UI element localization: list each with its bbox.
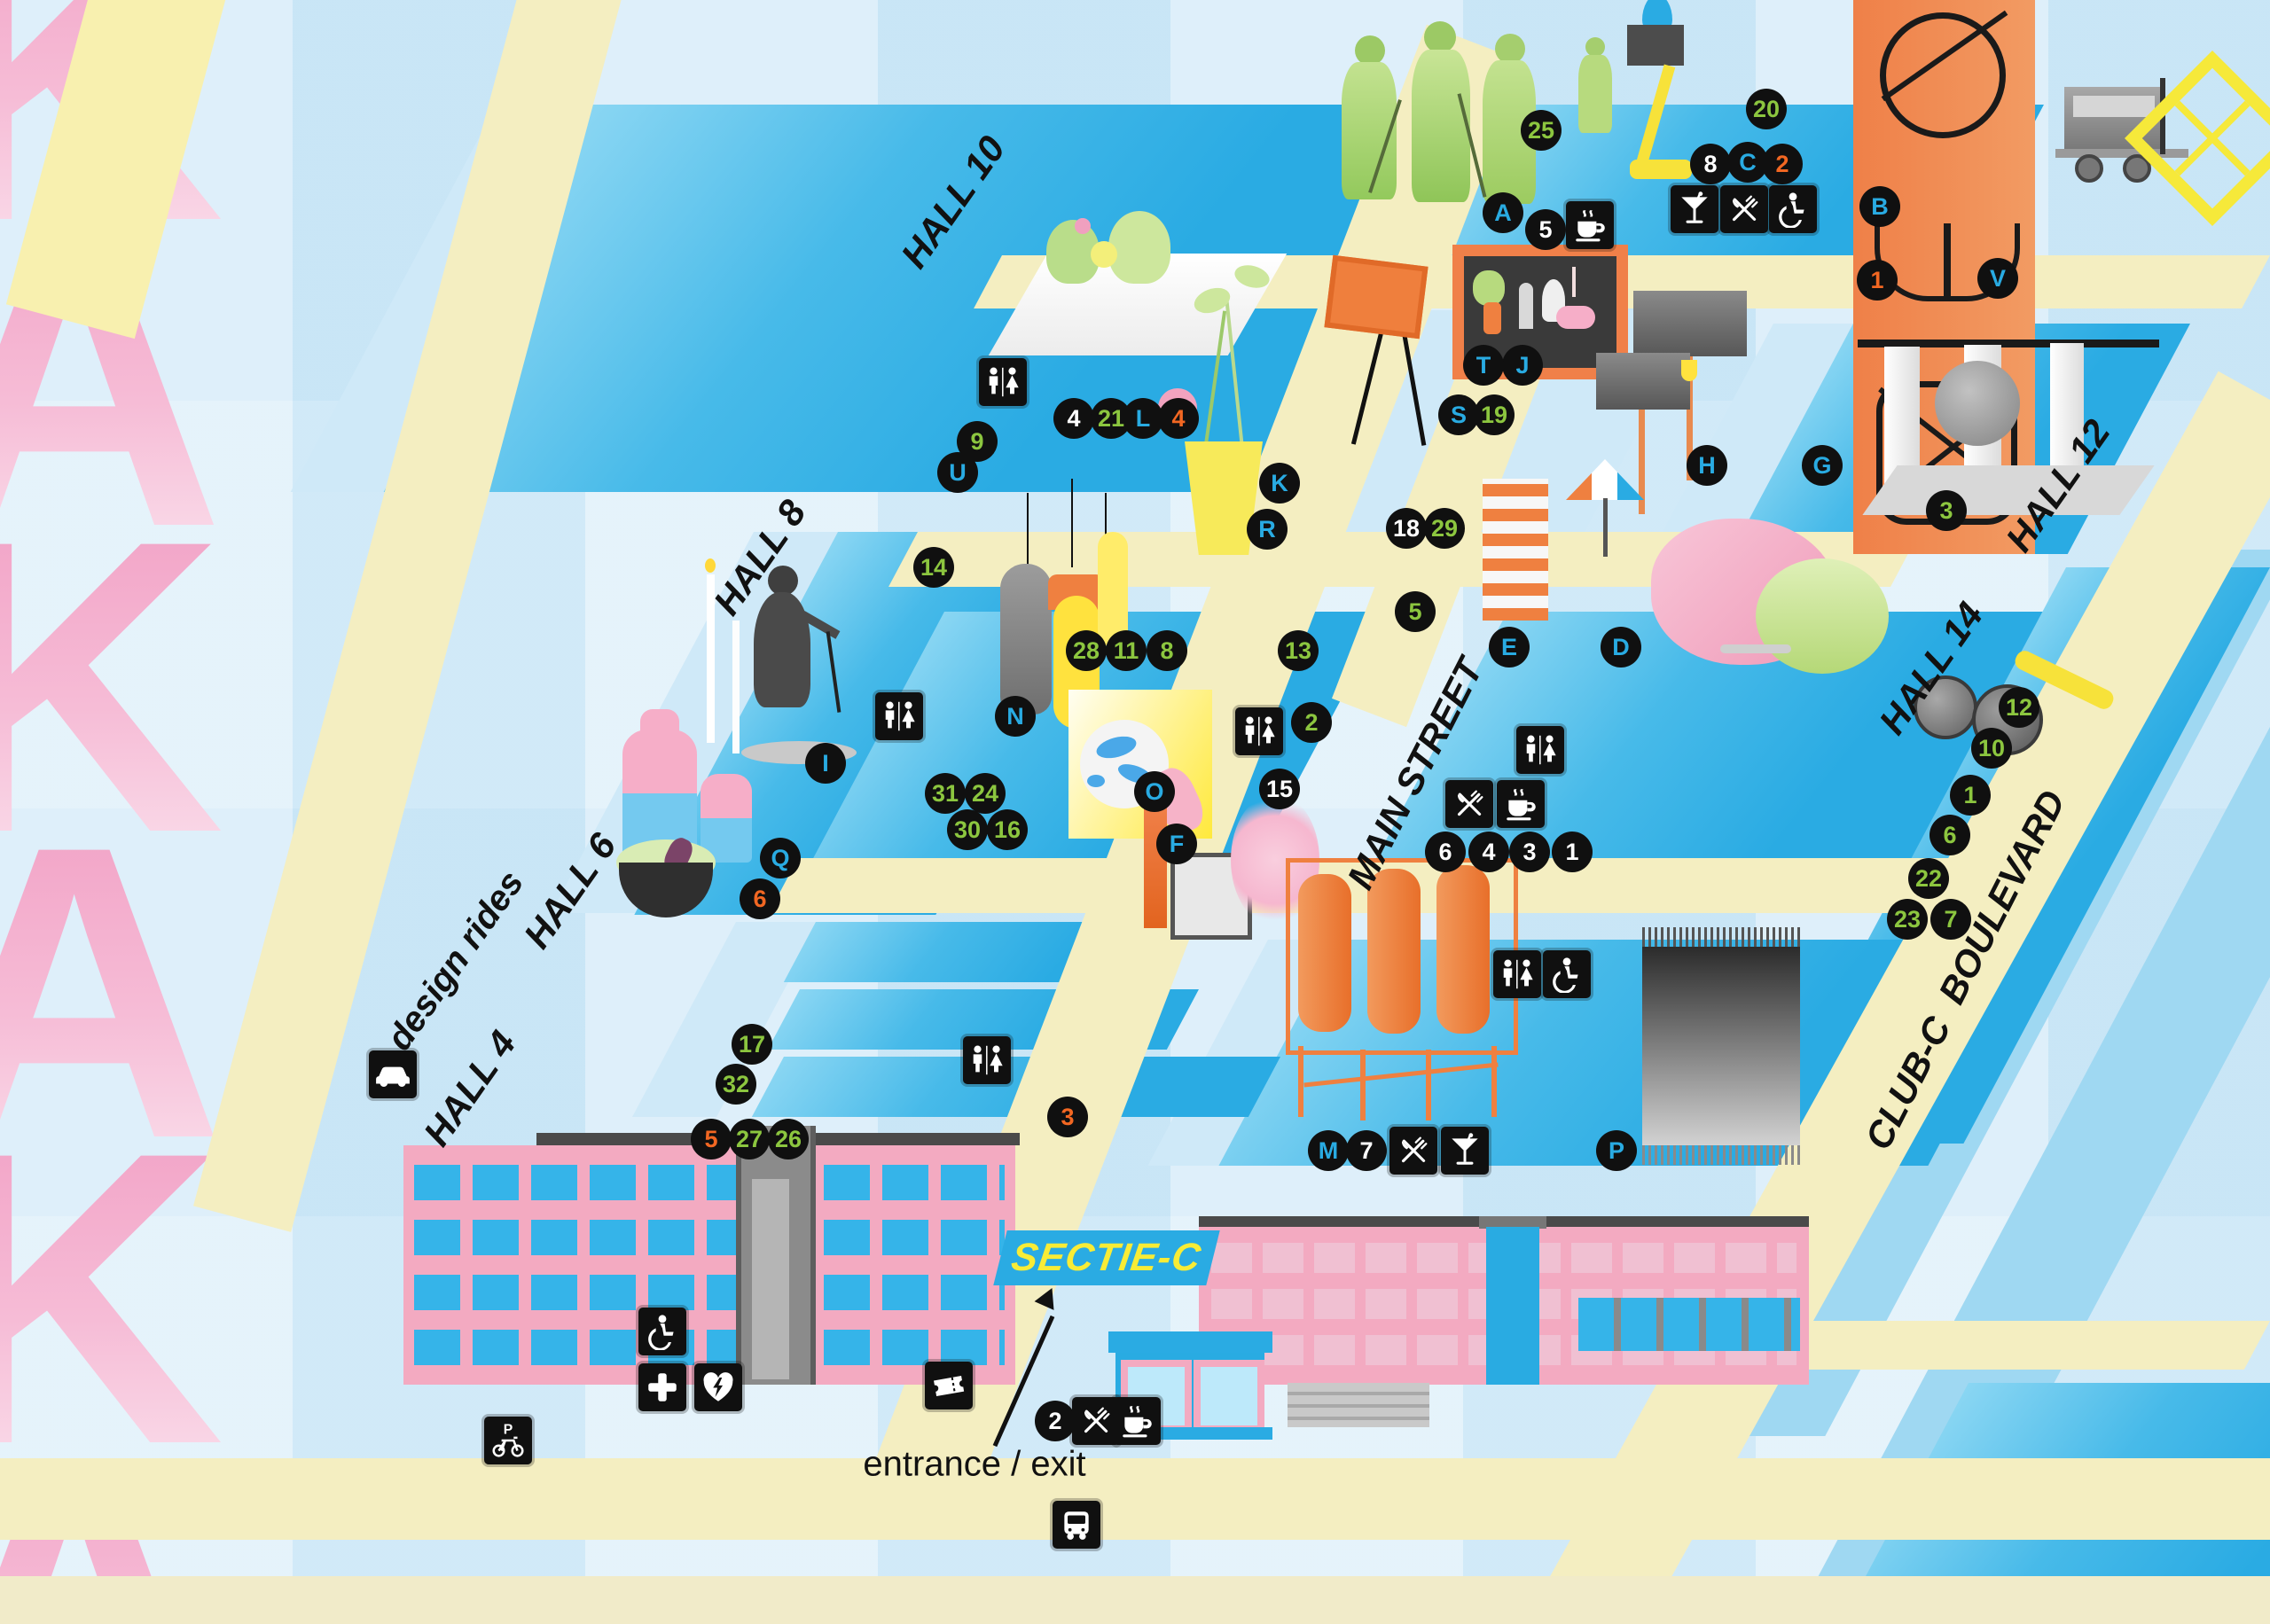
svg-text:P: P (504, 1423, 513, 1438)
marker-3: 3 (1509, 832, 1550, 872)
marker-3: 3 (1926, 490, 1967, 531)
marker-4: 4 (1158, 398, 1199, 439)
marker-24: 24 (965, 773, 1006, 814)
marker-R: R (1247, 509, 1288, 550)
road-clubc-south (1783, 1321, 2270, 1370)
bus-icon (1053, 1501, 1100, 1549)
marker-30: 30 (947, 809, 988, 850)
restroom-icon (963, 1036, 1011, 1084)
car-icon (369, 1050, 417, 1098)
marker-3: 3 (1047, 1097, 1088, 1137)
art-umbrella (1566, 459, 1646, 566)
marker-13: 13 (1278, 630, 1319, 671)
marker-8: 8 (1147, 630, 1187, 671)
wheelchair-icon (1769, 185, 1817, 233)
marker-20: 20 (1746, 89, 1787, 129)
marker-15: 15 (1259, 769, 1300, 809)
food-icon (1389, 1127, 1437, 1175)
marker-23: 23 (1887, 899, 1928, 940)
marker-14: 14 (913, 547, 954, 588)
festival-map: KAKAKA (0, 0, 2270, 1624)
marker-G: G (1802, 445, 1843, 486)
marker-31: 31 (925, 773, 966, 814)
marker-V: V (1977, 258, 2018, 299)
marker-22: 22 (1908, 858, 1949, 899)
cocktail-icon (1671, 185, 1718, 233)
art-striped-tower (1483, 479, 1548, 621)
marker-F: F (1156, 824, 1197, 864)
art-rug (1642, 927, 1800, 1165)
sectie-c-sign: SECTIE-C (993, 1230, 1219, 1285)
marker-2: 2 (1762, 144, 1803, 184)
food-icon (1445, 780, 1493, 828)
restroom-icon (1235, 707, 1283, 755)
marker-6: 6 (1929, 815, 1970, 855)
marker-4: 4 (1053, 398, 1094, 439)
marker-9: 9 (957, 421, 998, 462)
ticket-icon (925, 1362, 973, 1409)
marker-6: 6 (1425, 832, 1466, 872)
marker-17: 17 (732, 1024, 772, 1065)
marker-29: 29 (1424, 508, 1465, 549)
marker-18: 18 (1386, 508, 1427, 549)
marker-7: 7 (1930, 899, 1971, 940)
art-scaffold (1286, 851, 1516, 1121)
sectie-c-label: SECTIE-C (1009, 1236, 1205, 1280)
building-left (403, 1126, 1024, 1385)
marker-P: P (1596, 1130, 1637, 1171)
cocktail-icon (1441, 1127, 1489, 1175)
marker-B: B (1859, 186, 1900, 227)
marker-A: A (1483, 192, 1523, 233)
marker-T: T (1463, 345, 1504, 386)
marker-1: 1 (1552, 832, 1593, 872)
marker-5: 5 (691, 1119, 732, 1159)
marker-D: D (1601, 627, 1641, 668)
first-aid-icon (638, 1363, 686, 1411)
wheelchair-icon (638, 1308, 686, 1355)
coffee-icon (1497, 780, 1545, 828)
entrance-exit-label: entrance / exit (863, 1445, 1085, 1485)
marker-19: 19 (1474, 394, 1515, 435)
marker-1: 1 (1950, 775, 1991, 816)
building-sectie-c (1199, 1216, 1811, 1386)
marker-16: 16 (987, 809, 1028, 850)
restroom-icon (875, 692, 923, 740)
art-green-figures (1330, 18, 1632, 222)
marker-26: 26 (768, 1119, 809, 1159)
marker-2: 2 (1291, 702, 1332, 743)
restroom-icon (1516, 726, 1564, 774)
marker-10: 10 (1971, 728, 2012, 769)
marker-7: 7 (1346, 1130, 1387, 1171)
art-hall12-installation (1853, 332, 2172, 527)
marker-27: 27 (729, 1119, 770, 1159)
marker-Q: Q (760, 838, 801, 878)
marker-H: H (1687, 445, 1727, 486)
marker-6: 6 (740, 878, 780, 919)
marker-5: 5 (1525, 209, 1566, 250)
marker-5: 5 (1395, 591, 1436, 632)
restroom-icon (1493, 950, 1541, 998)
marker-28: 28 (1066, 630, 1107, 671)
road-bottom-2 (0, 1576, 2270, 1624)
marker-E: E (1489, 627, 1530, 668)
marker-K: K (1259, 463, 1300, 504)
marker-M: M (1308, 1130, 1349, 1171)
art-canopy (1640, 510, 1906, 687)
restroom-icon (979, 358, 1027, 406)
marker-11: 11 (1106, 630, 1147, 671)
road-bottom (0, 1458, 2270, 1540)
marker-4: 4 (1468, 832, 1509, 872)
marker-32: 32 (716, 1064, 756, 1105)
coffee-icon (1566, 201, 1614, 249)
food-icon (1720, 185, 1768, 233)
marker-O: O (1134, 771, 1175, 812)
marker-25: 25 (1521, 110, 1562, 151)
marker-1: 1 (1857, 260, 1898, 301)
marker-N: N (995, 696, 1036, 737)
marker-12: 12 (1999, 687, 2039, 728)
coffee-icon (1113, 1397, 1161, 1445)
marker-21: 21 (1091, 398, 1131, 439)
marker-J: J (1502, 345, 1543, 386)
marker-I: I (805, 743, 846, 784)
wheelchair-icon (1543, 950, 1591, 998)
marker-8: 8 (1690, 144, 1731, 184)
marker-2: 2 (1035, 1401, 1076, 1441)
aed-icon (694, 1363, 742, 1411)
bike-parking-icon: P (484, 1417, 532, 1464)
